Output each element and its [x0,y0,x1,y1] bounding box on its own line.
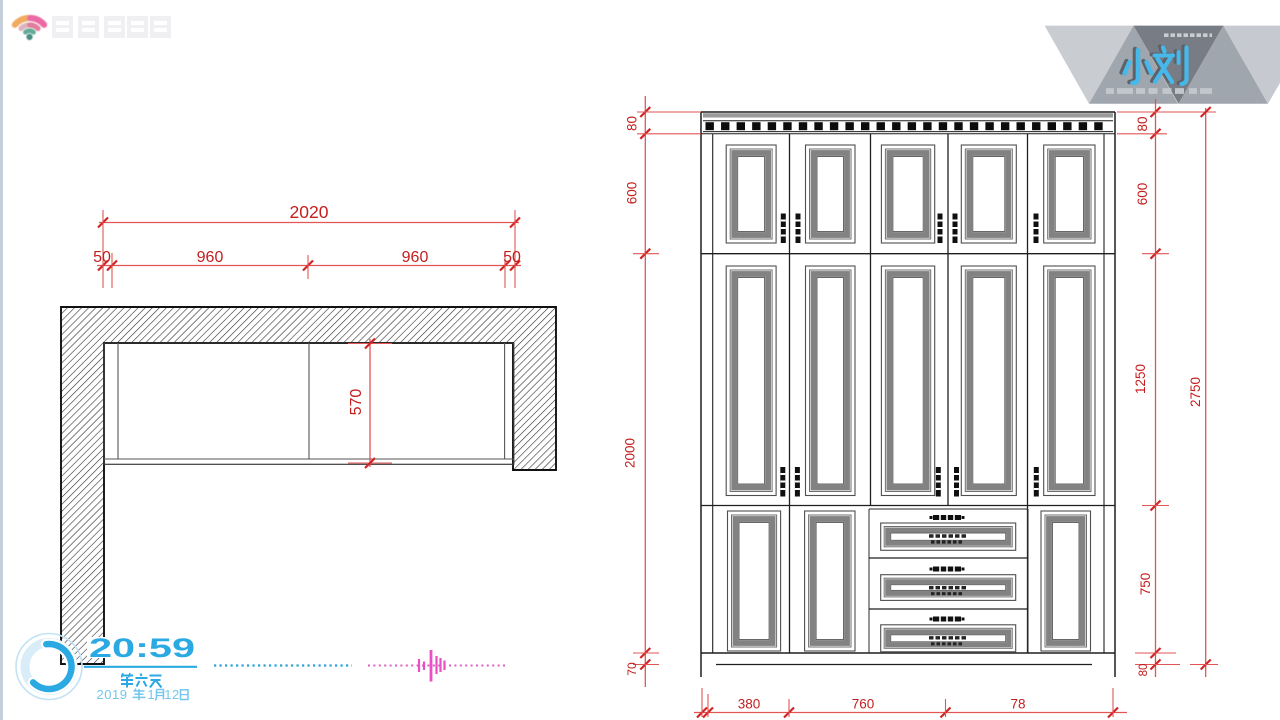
svg-text:2000: 2000 [623,438,638,468]
svg-text:600: 600 [1135,183,1150,206]
svg-text:960: 960 [402,249,429,266]
svg-text:960: 960 [197,249,224,266]
svg-text:80: 80 [625,116,640,131]
svg-text:2019: 2019 [97,687,128,702]
svg-text:50: 50 [93,249,111,266]
svg-text:78: 78 [1010,697,1025,712]
svg-text:1250: 1250 [1133,364,1148,394]
svg-text:2020: 2020 [290,202,329,222]
svg-text:570: 570 [348,389,365,416]
svg-text:760: 760 [852,697,875,712]
svg-text:20:59: 20:59 [89,633,195,663]
svg-text:2750: 2750 [1188,377,1203,407]
svg-text:380: 380 [738,697,761,712]
svg-text:750: 750 [1138,573,1153,596]
svg-text:50: 50 [503,249,521,266]
svg-text:80: 80 [1138,664,1150,677]
svg-text:1: 1 [147,687,154,702]
svg-text:70: 70 [625,662,639,676]
svg-text:80: 80 [1135,116,1150,131]
svg-text:12: 12 [164,687,179,702]
svg-text:600: 600 [625,182,640,205]
